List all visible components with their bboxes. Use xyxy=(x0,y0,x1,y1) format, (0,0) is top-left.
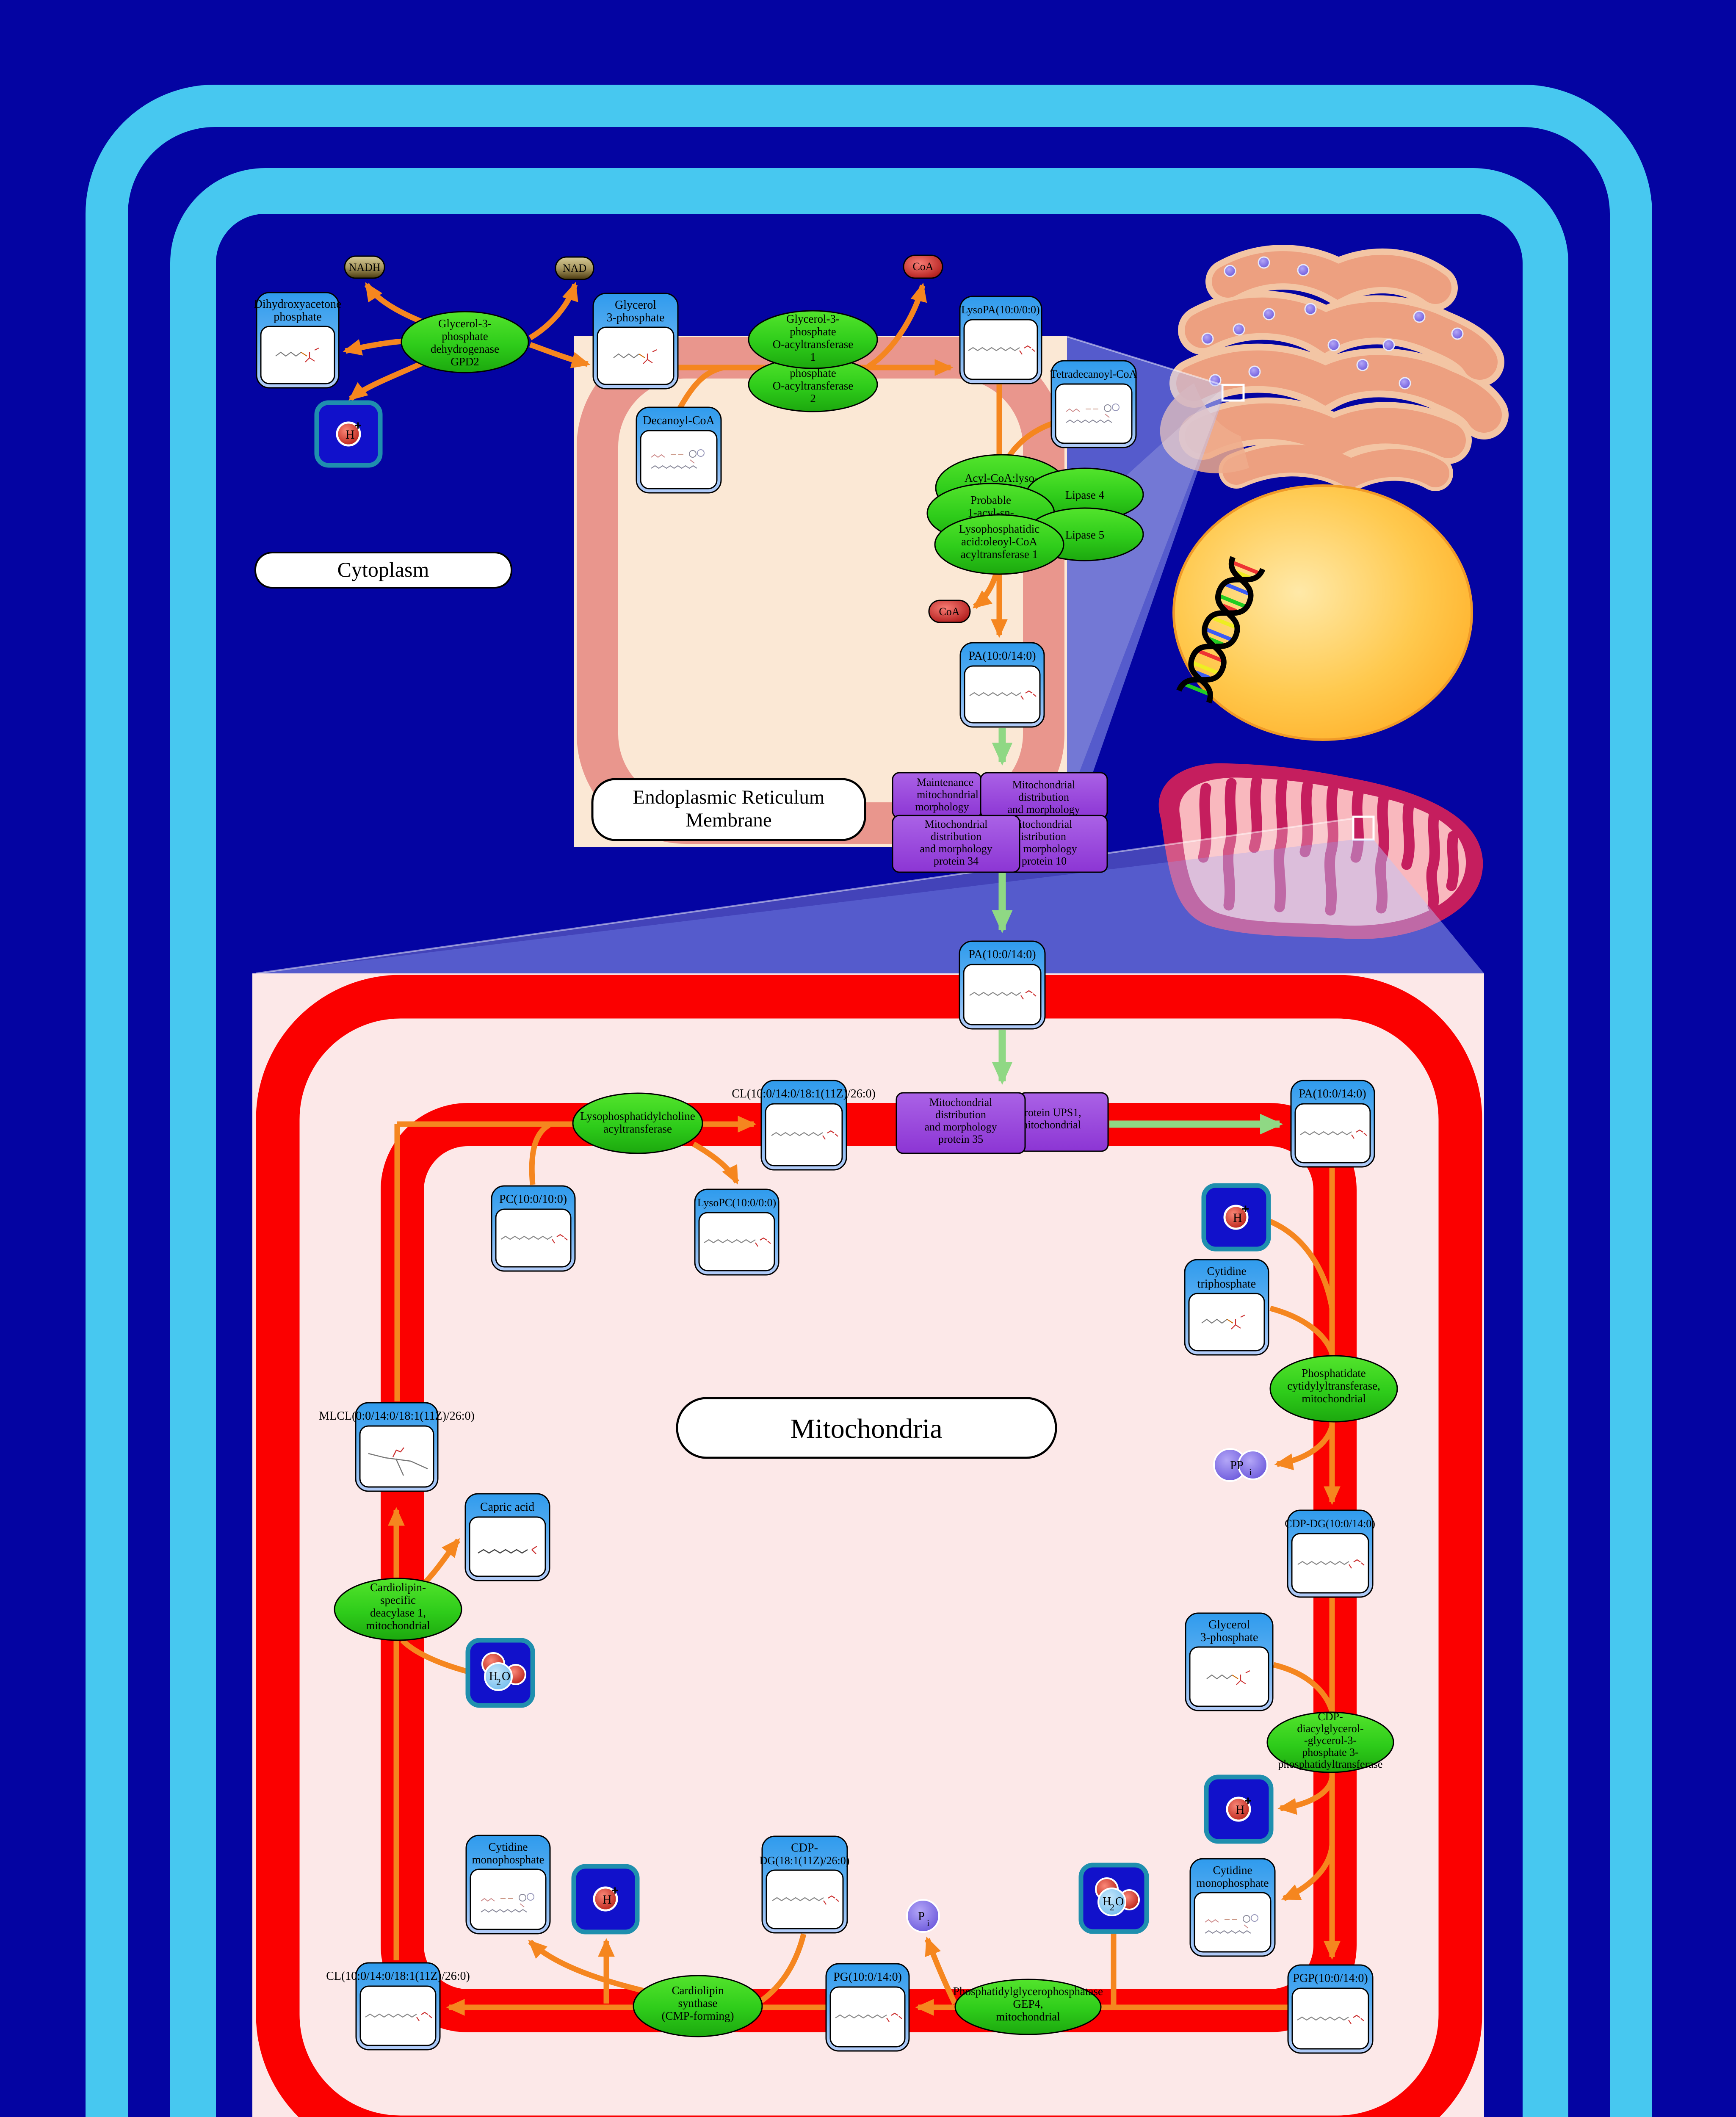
svg-text:PGP(10:0/14:0): PGP(10:0/14:0) xyxy=(1293,1972,1368,1985)
svg-text:distribution: distribution xyxy=(1015,830,1066,843)
svg-text:PA(10:0/14:0): PA(10:0/14:0) xyxy=(968,948,1036,961)
svg-text:Probable: Probable xyxy=(970,494,1011,506)
svg-text:2: 2 xyxy=(1110,1902,1114,1912)
svg-text:Cytidine: Cytidine xyxy=(1213,1864,1252,1877)
svg-text:CDP-: CDP- xyxy=(791,1841,818,1854)
svg-text:deacylase 1,: deacylase 1, xyxy=(370,1606,426,1619)
svg-text:phosphate 3-: phosphate 3- xyxy=(1302,1746,1359,1758)
svg-text:PA(10:0/14:0): PA(10:0/14:0) xyxy=(968,649,1036,663)
svg-text:i: i xyxy=(927,1918,929,1928)
svg-text:morphology: morphology xyxy=(915,801,969,813)
svg-text:Lysophosphatidylcholine: Lysophosphatidylcholine xyxy=(580,1110,695,1122)
svg-text:phosphate: phosphate xyxy=(790,325,836,338)
svg-text:Lipase 4: Lipase 4 xyxy=(1065,489,1105,501)
svg-text:Acyl-CoA:lyso-: Acyl-CoA:lyso- xyxy=(965,472,1038,484)
svg-text:synthase: synthase xyxy=(678,1997,718,2009)
svg-text:PP: PP xyxy=(1230,1459,1243,1472)
svg-text:1: 1 xyxy=(810,351,816,363)
svg-text:CL(10:0/14:0/18:1(11Z)/26:0): CL(10:0/14:0/18:1(11Z)/26:0) xyxy=(732,1087,876,1100)
svg-text:monophosphate: monophosphate xyxy=(472,1853,545,1866)
svg-text:Phosphatidate: Phosphatidate xyxy=(1302,1367,1366,1379)
svg-text:Cytoplasm: Cytoplasm xyxy=(337,558,429,581)
svg-text:and morphology: and morphology xyxy=(924,1121,997,1133)
svg-text:acyltransferase: acyltransferase xyxy=(603,1122,672,1135)
svg-text:protein UPS1,: protein UPS1, xyxy=(1019,1106,1081,1119)
svg-text:GEP4,: GEP4, xyxy=(1013,1998,1043,2010)
svg-text:mitochondrial: mitochondrial xyxy=(996,2010,1060,2023)
svg-text:Cytidine: Cytidine xyxy=(489,1841,528,1853)
svg-text:mitochondrial: mitochondrial xyxy=(917,788,979,801)
svg-text:distribution: distribution xyxy=(935,1108,986,1121)
svg-text:Phosphatidylglycerophosphatase: Phosphatidylglycerophosphatase xyxy=(953,1985,1103,1998)
svg-text:Maintenance: Maintenance xyxy=(917,776,973,788)
svg-text:PC(10:0/10:0): PC(10:0/10:0) xyxy=(499,1193,567,1206)
svg-text:LysoPC(10:0/0:0): LysoPC(10:0/0:0) xyxy=(697,1197,776,1209)
svg-text:Capric acid: Capric acid xyxy=(480,1501,534,1514)
svg-text:Lipase 5: Lipase 5 xyxy=(1065,528,1104,541)
svg-text:Cardiolipin-: Cardiolipin- xyxy=(370,1581,426,1594)
svg-text:MLCL(0:0/14:0/18:1(11Z)/26:0): MLCL(0:0/14:0/18:1(11Z)/26:0) xyxy=(319,1409,475,1423)
svg-text:Endoplasmic Reticulum: Endoplasmic Reticulum xyxy=(633,786,825,808)
svg-text:CDP-: CDP- xyxy=(1318,1711,1343,1723)
svg-text:GPD2: GPD2 xyxy=(451,355,479,368)
svg-text:O-acyltransferase: O-acyltransferase xyxy=(773,338,853,351)
svg-text:H: H xyxy=(1236,1803,1245,1817)
svg-text:O: O xyxy=(502,1670,510,1683)
svg-text:P: P xyxy=(918,1910,925,1923)
svg-text:Decanoyl-CoA: Decanoyl-CoA xyxy=(643,414,715,427)
svg-text:mitochondrial: mitochondrial xyxy=(366,1619,430,1632)
svg-text:Glycerol-3-: Glycerol-3- xyxy=(438,317,492,330)
svg-text:protein 34: protein 34 xyxy=(934,855,979,867)
svg-text:Mitochondrial: Mitochondrial xyxy=(929,1096,992,1108)
svg-text:O: O xyxy=(1115,1895,1124,1908)
svg-text:diacylglycerol-: diacylglycerol- xyxy=(1297,1722,1363,1735)
svg-text:dehydrogenase: dehydrogenase xyxy=(431,343,499,355)
svg-text:acid:oleoyl-CoA: acid:oleoyl-CoA xyxy=(961,535,1037,548)
svg-text:mitochondrial: mitochondrial xyxy=(1302,1392,1366,1405)
svg-text:3-phosphate: 3-phosphate xyxy=(1200,1631,1258,1644)
svg-text:mitochondrial: mitochondrial xyxy=(1019,1119,1081,1131)
svg-text:Membrane: Membrane xyxy=(686,809,772,831)
svg-text:3-phosphate: 3-phosphate xyxy=(607,311,665,324)
svg-text:phosphate: phosphate xyxy=(274,310,322,323)
svg-text:phosphate: phosphate xyxy=(442,330,488,343)
svg-text:2: 2 xyxy=(810,392,816,405)
svg-text:(CMP-forming): (CMP-forming) xyxy=(662,2009,734,2022)
svg-text:distribution: distribution xyxy=(931,830,981,843)
svg-text:CoA: CoA xyxy=(912,260,933,273)
svg-text:and morphology: and morphology xyxy=(1007,803,1080,815)
svg-text:CDP-DG(10:0/14:0): CDP-DG(10:0/14:0) xyxy=(1285,1517,1375,1530)
svg-text:Glycerol-3-: Glycerol-3- xyxy=(786,312,840,325)
svg-text:PG(10:0/14:0): PG(10:0/14:0) xyxy=(833,1971,902,1984)
svg-text:CoA: CoA xyxy=(939,605,959,618)
svg-text:-glycerol-3-: -glycerol-3- xyxy=(1304,1734,1357,1747)
svg-text:protein 10: protein 10 xyxy=(1022,855,1067,867)
svg-text:Mitochondria: Mitochondria xyxy=(790,1413,942,1444)
svg-text:Glycerol: Glycerol xyxy=(615,298,656,312)
svg-text:H: H xyxy=(1233,1211,1242,1225)
svg-text:Cardiolipin: Cardiolipin xyxy=(672,1984,724,1997)
svg-text:Cytidine: Cytidine xyxy=(1207,1265,1247,1277)
svg-text:Tetradecanoyl-CoA: Tetradecanoyl-CoA xyxy=(1050,368,1137,380)
svg-text:2: 2 xyxy=(496,1677,501,1687)
svg-text:DG(18:1(11Z)/26:0): DG(18:1(11Z)/26:0) xyxy=(760,1854,850,1867)
svg-text:specific: specific xyxy=(380,1594,416,1606)
svg-text:O-acyltransferase: O-acyltransferase xyxy=(773,379,853,392)
svg-text:Mitochondrial: Mitochondrial xyxy=(1012,779,1075,791)
svg-text:LysoPA(10:0/0:0): LysoPA(10:0/0:0) xyxy=(961,304,1039,316)
svg-text:NAD: NAD xyxy=(563,262,586,274)
svg-text:i: i xyxy=(1249,1467,1252,1477)
svg-text:and morphology: and morphology xyxy=(920,843,992,855)
svg-text:triphosphate: triphosphate xyxy=(1197,1277,1256,1291)
svg-text:acyltransferase 1: acyltransferase 1 xyxy=(961,548,1038,561)
svg-text:distribution: distribution xyxy=(1018,791,1069,803)
svg-text:NADH: NADH xyxy=(348,261,380,274)
svg-text:H: H xyxy=(346,428,355,442)
svg-text:Lysophosphatidic: Lysophosphatidic xyxy=(959,522,1040,535)
svg-text:Dihydroxyacetone: Dihydroxyacetone xyxy=(254,298,342,311)
svg-text:CL(10:0/14:0/18:1(11Z)/26:0): CL(10:0/14:0/18:1(11Z)/26:0) xyxy=(326,1970,470,1983)
svg-text:cytidylyltransferase,: cytidylyltransferase, xyxy=(1287,1379,1380,1392)
svg-text:H: H xyxy=(603,1893,612,1907)
svg-text:monophosphate: monophosphate xyxy=(1197,1877,1269,1889)
svg-text:phosphatidyltransferase: phosphatidyltransferase xyxy=(1278,1758,1383,1770)
svg-text:Mitochondrial: Mitochondrial xyxy=(925,818,988,830)
svg-text:protein 35: protein 35 xyxy=(938,1133,983,1145)
svg-text:PA(10:0/14:0): PA(10:0/14:0) xyxy=(1299,1087,1366,1100)
svg-text:Glycerol: Glycerol xyxy=(1208,1618,1250,1631)
